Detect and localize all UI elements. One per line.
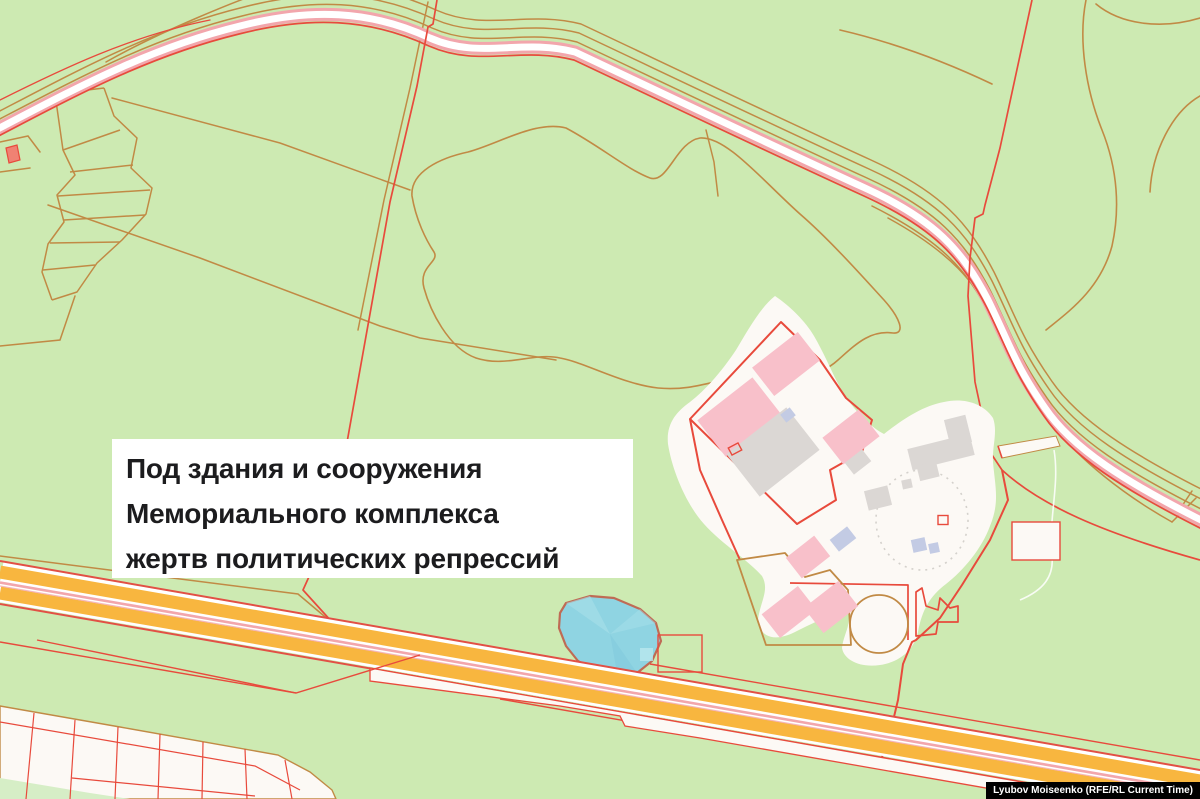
map-screenshot: Под здания и сооружения Мемориального ко…	[0, 0, 1200, 799]
map-canvas	[0, 0, 1200, 799]
credit-text: Lyubov Moiseenko (RFE/RL Current Time)	[993, 785, 1193, 796]
annotation-line-1: Под здания и сооружения	[126, 446, 619, 491]
annotation-line-3: жертв политических репрессий	[126, 536, 619, 581]
building-lavender	[928, 542, 940, 554]
credit-bar: Lyubov Moiseenko (RFE/RL Current Time)	[986, 782, 1200, 799]
annotation-box: Под здания и сооружения Мемориального ко…	[112, 439, 633, 578]
small-red-parcel	[6, 145, 20, 163]
annotation-line-2: Мемориального комплекса	[126, 491, 619, 536]
small-parcel-east	[1012, 522, 1060, 560]
pond-facet	[640, 648, 653, 661]
